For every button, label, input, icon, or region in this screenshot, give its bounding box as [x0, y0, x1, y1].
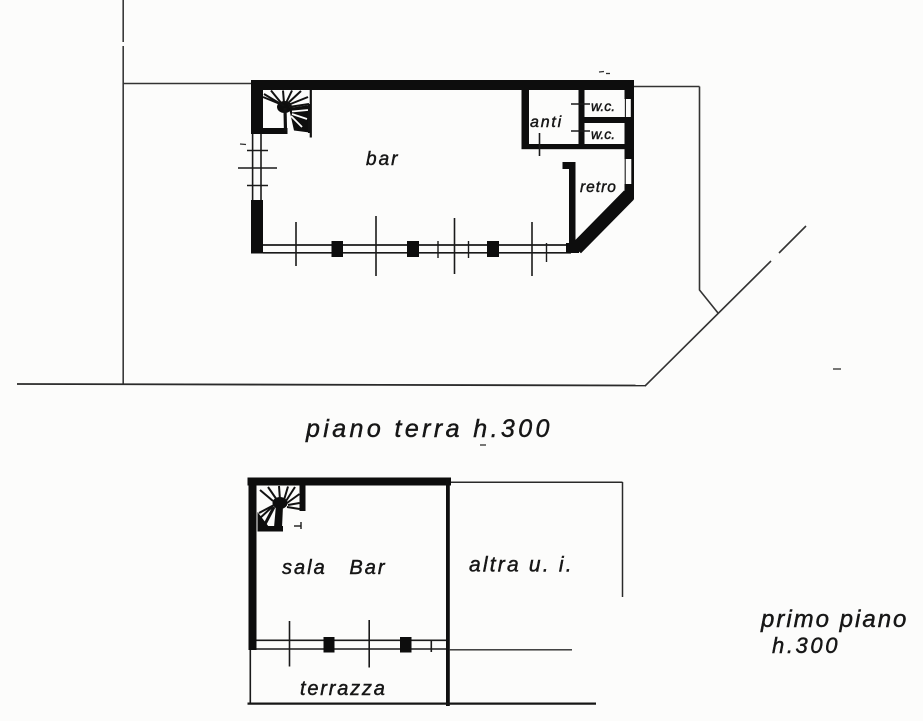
svg-text:piano terra h.300: piano terra h.300 [305, 415, 553, 443]
svg-text:terrazza: terrazza [300, 678, 387, 700]
svg-text:altra u. i.: altra u. i. [469, 554, 574, 577]
svg-text:retro: retro [580, 179, 617, 196]
svg-text:primo piano: primo piano [760, 606, 908, 633]
svg-text:bar: bar [366, 149, 399, 170]
svg-text:w.c.: w.c. [591, 98, 615, 114]
svg-text:w.c.: w.c. [591, 126, 615, 142]
svg-text:sala Bar: sala Bar [282, 557, 386, 579]
svg-text:anti: anti [530, 114, 563, 131]
svg-text:h.300: h.300 [772, 633, 840, 658]
